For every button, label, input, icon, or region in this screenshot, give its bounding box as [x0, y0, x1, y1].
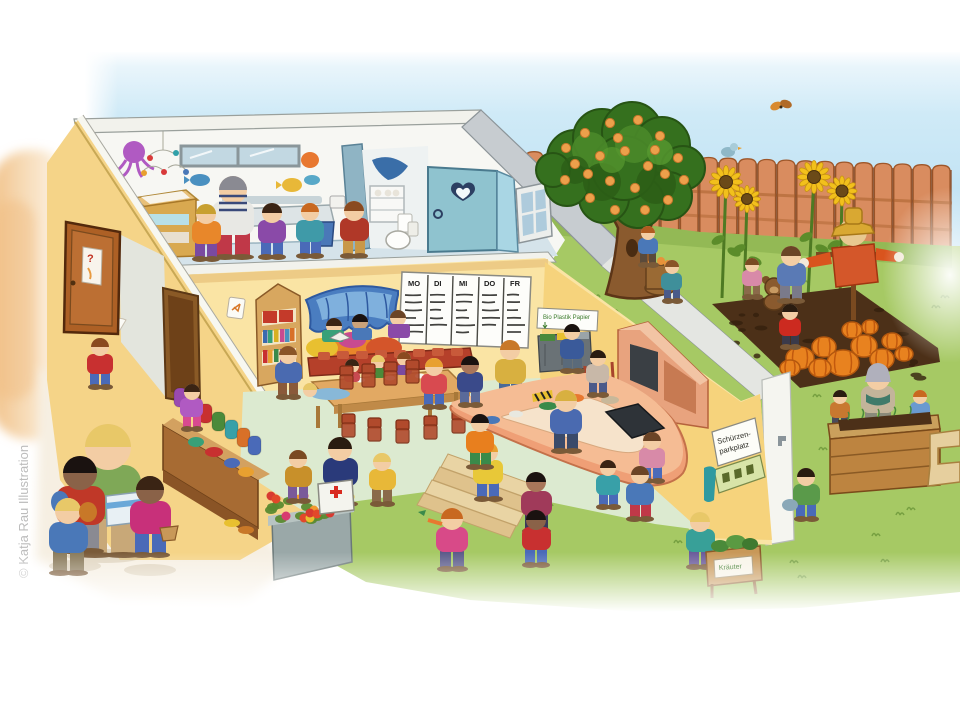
svg-text:MI: MI	[459, 279, 467, 288]
svg-text:?: ?	[87, 253, 94, 265]
svg-text:DO: DO	[484, 279, 495, 288]
svg-text:MO: MO	[408, 279, 420, 288]
svg-text:Bio Plastik Papier: Bio Plastik Papier	[543, 315, 590, 321]
svg-text:FR: FR	[510, 279, 521, 288]
svg-text:DI: DI	[434, 279, 442, 288]
